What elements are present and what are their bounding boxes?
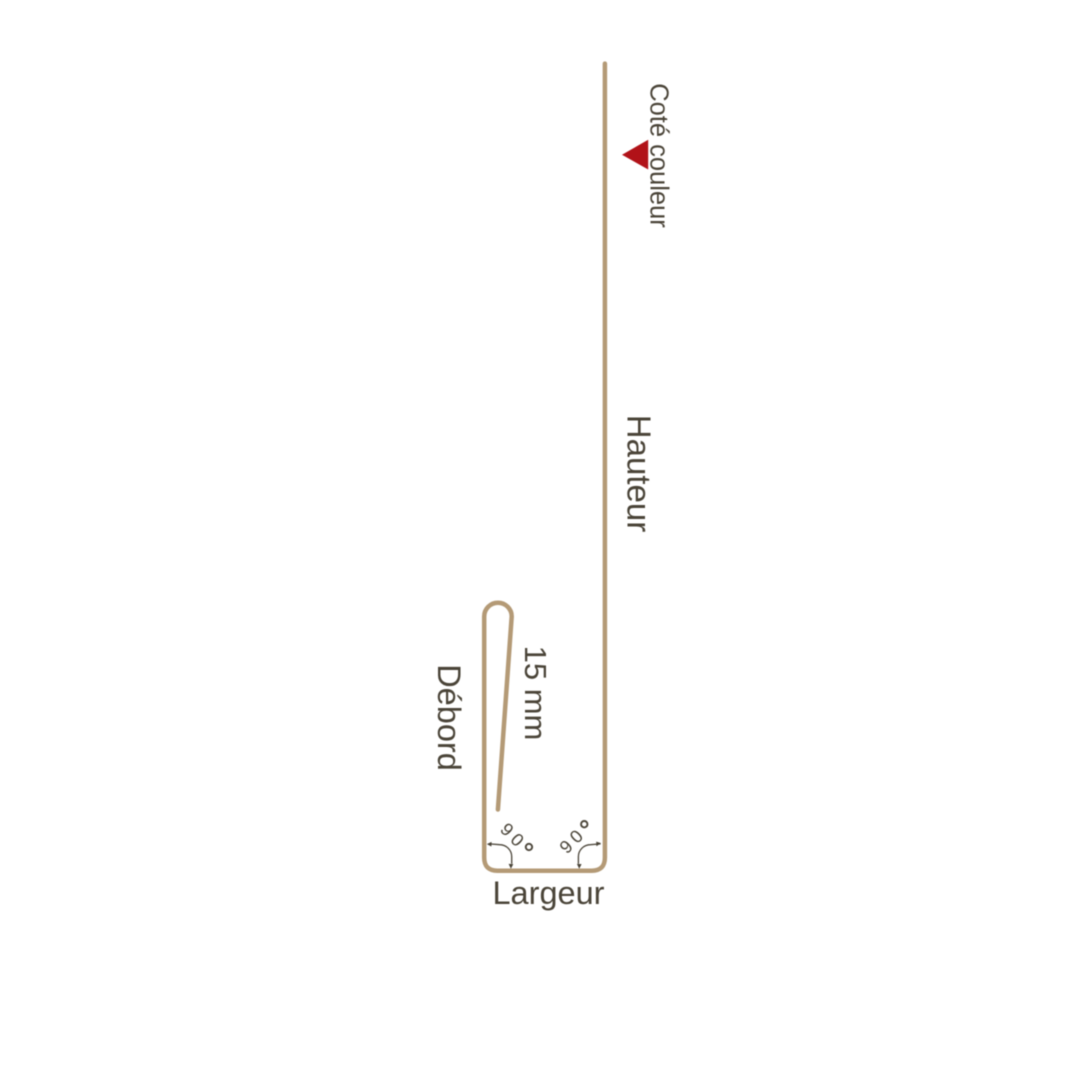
svg-text:Coté couleur: Coté couleur	[645, 83, 673, 228]
svg-text:Débord: Débord	[431, 664, 467, 771]
svg-text:Largeur: Largeur	[492, 875, 604, 911]
svg-text:Hauteur: Hauteur	[621, 415, 658, 532]
svg-text:15 mm: 15 mm	[518, 646, 553, 741]
